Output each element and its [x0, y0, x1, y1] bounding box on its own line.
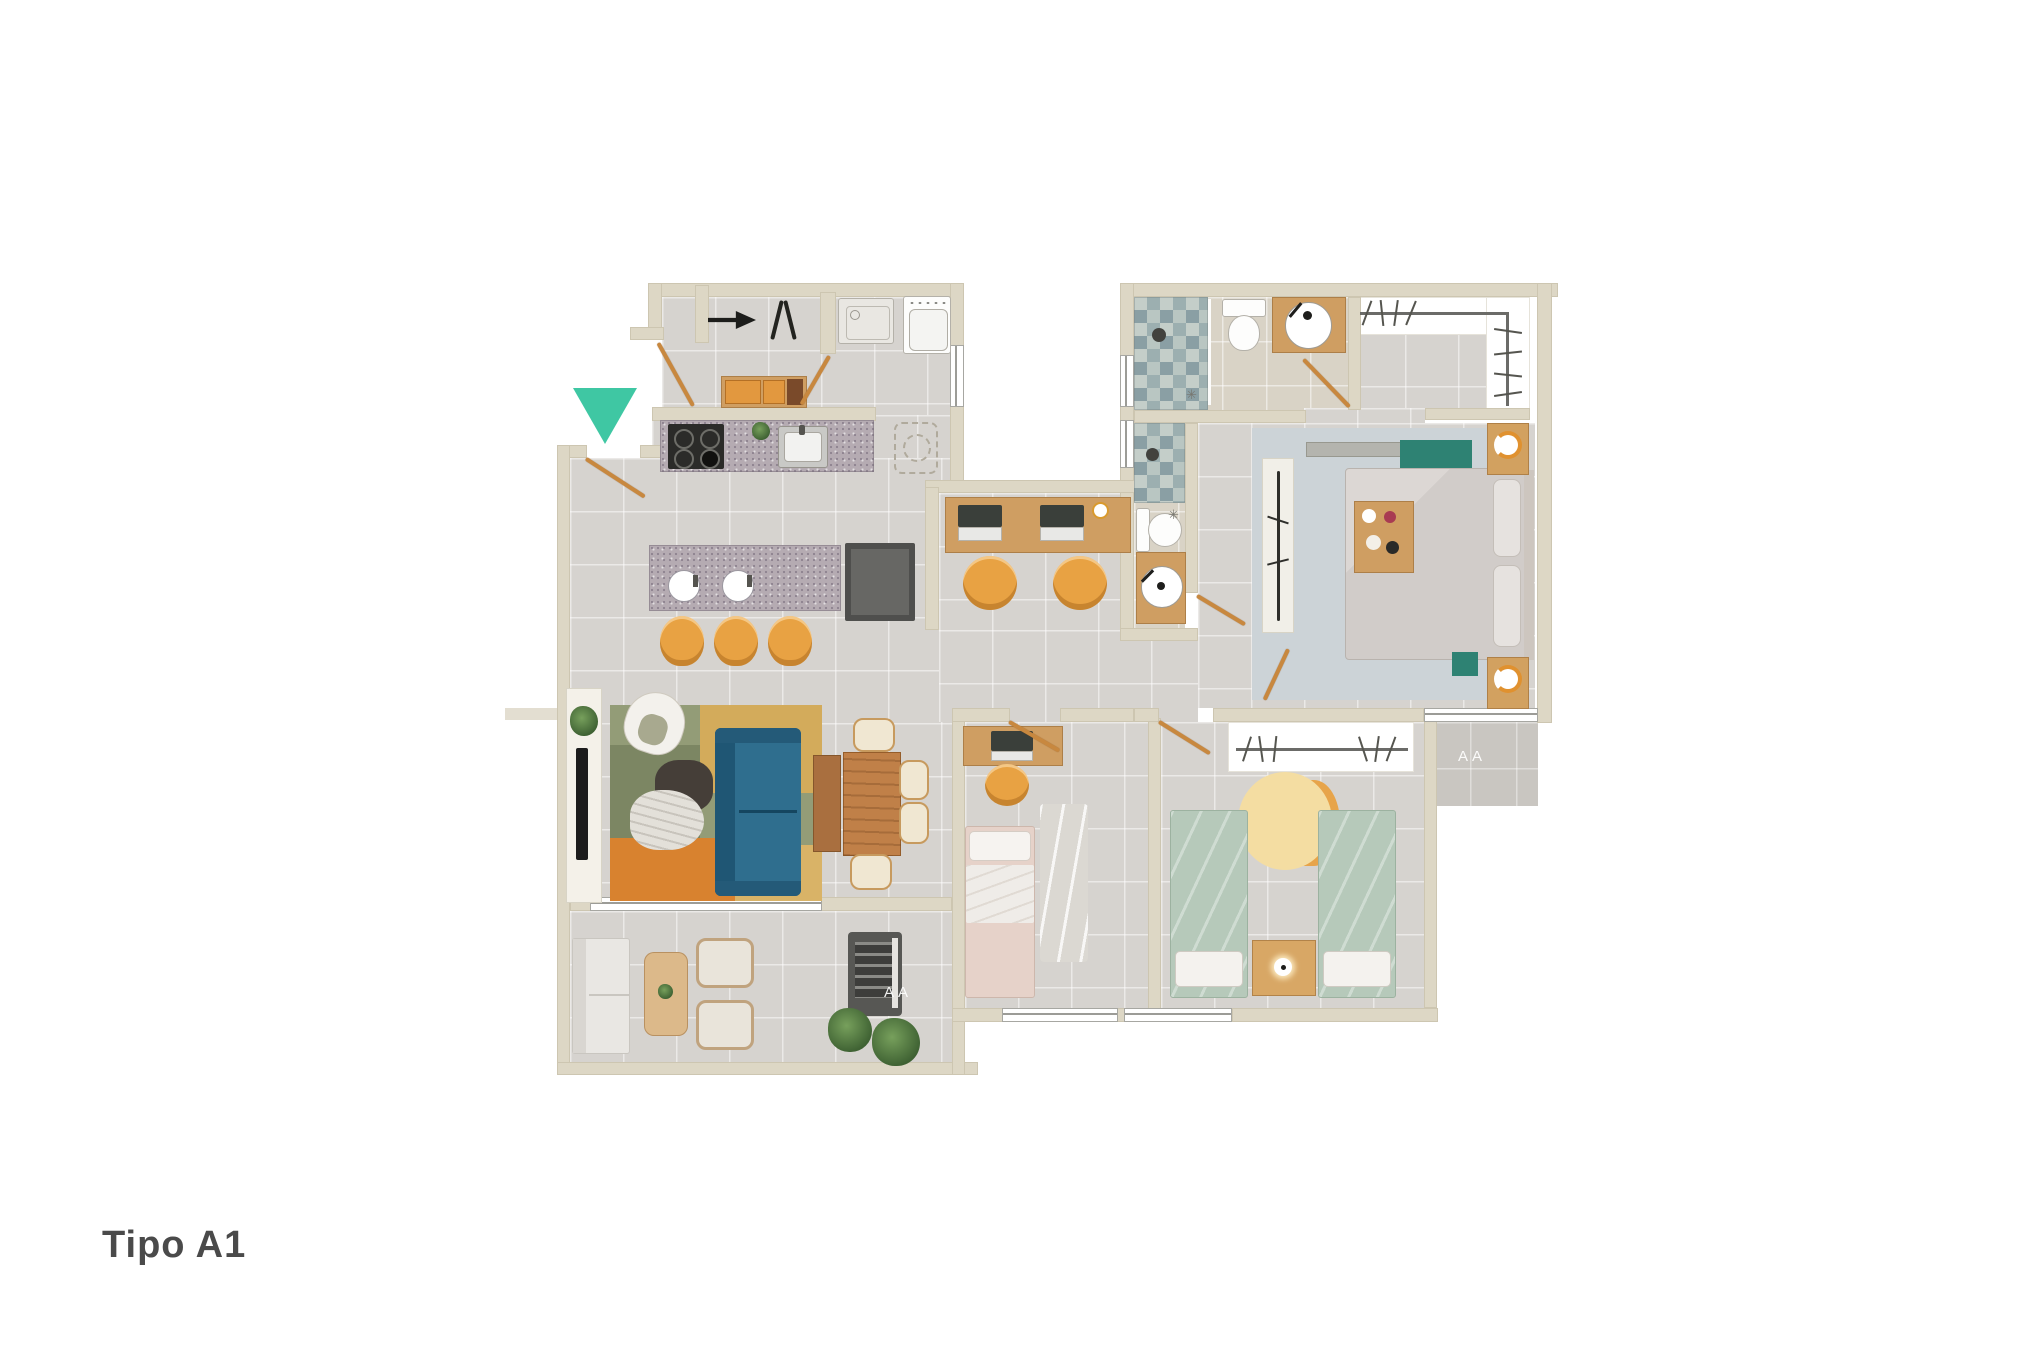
outdoor-sofa	[572, 938, 630, 1054]
wall	[1060, 708, 1134, 722]
water-heater-dashed	[894, 422, 938, 474]
bedroom2-rug	[1040, 804, 1088, 962]
dining-chair	[899, 802, 929, 844]
lamp-icon	[1494, 431, 1522, 459]
lamp-icon	[1494, 665, 1522, 693]
kitchen-island	[649, 545, 841, 611]
desk-chair	[1053, 556, 1107, 610]
headboard	[1524, 470, 1534, 660]
wall	[1120, 283, 1558, 297]
wall	[925, 480, 1137, 493]
wall	[1213, 708, 1424, 722]
teal-throw	[1452, 652, 1478, 676]
bath-vanity	[1272, 297, 1346, 353]
bedroom2-bed	[965, 826, 1035, 998]
bar-stool	[714, 616, 758, 666]
nightstand	[1252, 940, 1316, 996]
wall	[695, 285, 709, 343]
bedroom3-closet	[1228, 722, 1414, 772]
wall	[820, 292, 836, 354]
plant-icon	[752, 422, 770, 440]
window	[1002, 1008, 1118, 1022]
wall	[1120, 628, 1198, 641]
outdoor-table	[644, 952, 688, 1036]
floor-drain-icon: ✳	[1168, 508, 1179, 521]
floor-drain-icon: ✳	[1186, 388, 1197, 401]
plant-icon	[872, 1018, 920, 1066]
wall	[1148, 718, 1161, 1010]
shower	[1134, 423, 1185, 503]
ac-label: AA	[884, 984, 912, 1001]
dresser	[1306, 442, 1406, 457]
bedroom3-bed	[1318, 810, 1396, 998]
wall	[1424, 718, 1437, 1008]
bar-stool	[660, 616, 704, 666]
wall	[652, 407, 876, 421]
plant-icon	[828, 1008, 872, 1052]
shower-screen	[1208, 299, 1211, 405]
folding-table	[721, 376, 807, 408]
tall-wardrobe	[1262, 458, 1294, 633]
wall	[952, 708, 1010, 722]
window	[1120, 420, 1134, 468]
window	[950, 345, 964, 407]
bbq-grill	[848, 932, 902, 1016]
dining-chair	[850, 854, 892, 890]
utility-sink	[838, 298, 894, 344]
wall	[630, 327, 664, 340]
shower-drain	[1146, 448, 1159, 461]
closet-passage-floor	[1304, 408, 1425, 423]
bath-vanity	[1136, 552, 1186, 624]
dining-chair	[853, 718, 895, 752]
master-bed	[1345, 468, 1527, 660]
outdoor-chair	[696, 938, 754, 988]
dining-table	[843, 752, 901, 856]
shower-drain	[1152, 328, 1166, 342]
study-desk	[945, 497, 1131, 553]
ac-label: AA	[1458, 748, 1486, 765]
desk-chair	[963, 556, 1017, 610]
wall	[1232, 1008, 1438, 1022]
entrance-marker-icon	[573, 388, 637, 444]
window	[1120, 355, 1134, 407]
wall	[557, 1062, 978, 1075]
tv-icon	[576, 748, 588, 860]
side-table	[630, 790, 704, 850]
wall	[1134, 410, 1306, 423]
window	[1124, 1008, 1232, 1022]
washing-machine	[903, 296, 951, 354]
wall	[1134, 708, 1159, 722]
kitchen-sink	[778, 426, 828, 468]
outdoor-chair	[696, 1000, 754, 1050]
refrigerator	[845, 543, 915, 621]
closet-walk-floor	[1352, 333, 1488, 410]
desk-chair	[985, 764, 1029, 806]
wall	[925, 487, 939, 630]
stove-icon	[668, 424, 724, 469]
wall	[952, 1008, 1004, 1022]
sofa	[715, 728, 801, 896]
bar-stool	[768, 616, 812, 666]
unit-type-label: Tipo A1	[102, 1224, 246, 1267]
floor-plan-page: ✳ ✳	[0, 0, 2032, 1355]
plant-icon	[570, 706, 598, 736]
dining-chair	[899, 760, 929, 800]
wall	[1537, 283, 1552, 723]
wall	[820, 897, 952, 911]
window	[1424, 708, 1538, 722]
bedroom3-bed	[1170, 810, 1248, 998]
wall	[1185, 423, 1198, 593]
neighbor-wall-stub	[505, 708, 557, 720]
dining-bench	[813, 755, 841, 852]
toilet-icon	[1228, 315, 1260, 351]
wall	[1425, 408, 1530, 420]
